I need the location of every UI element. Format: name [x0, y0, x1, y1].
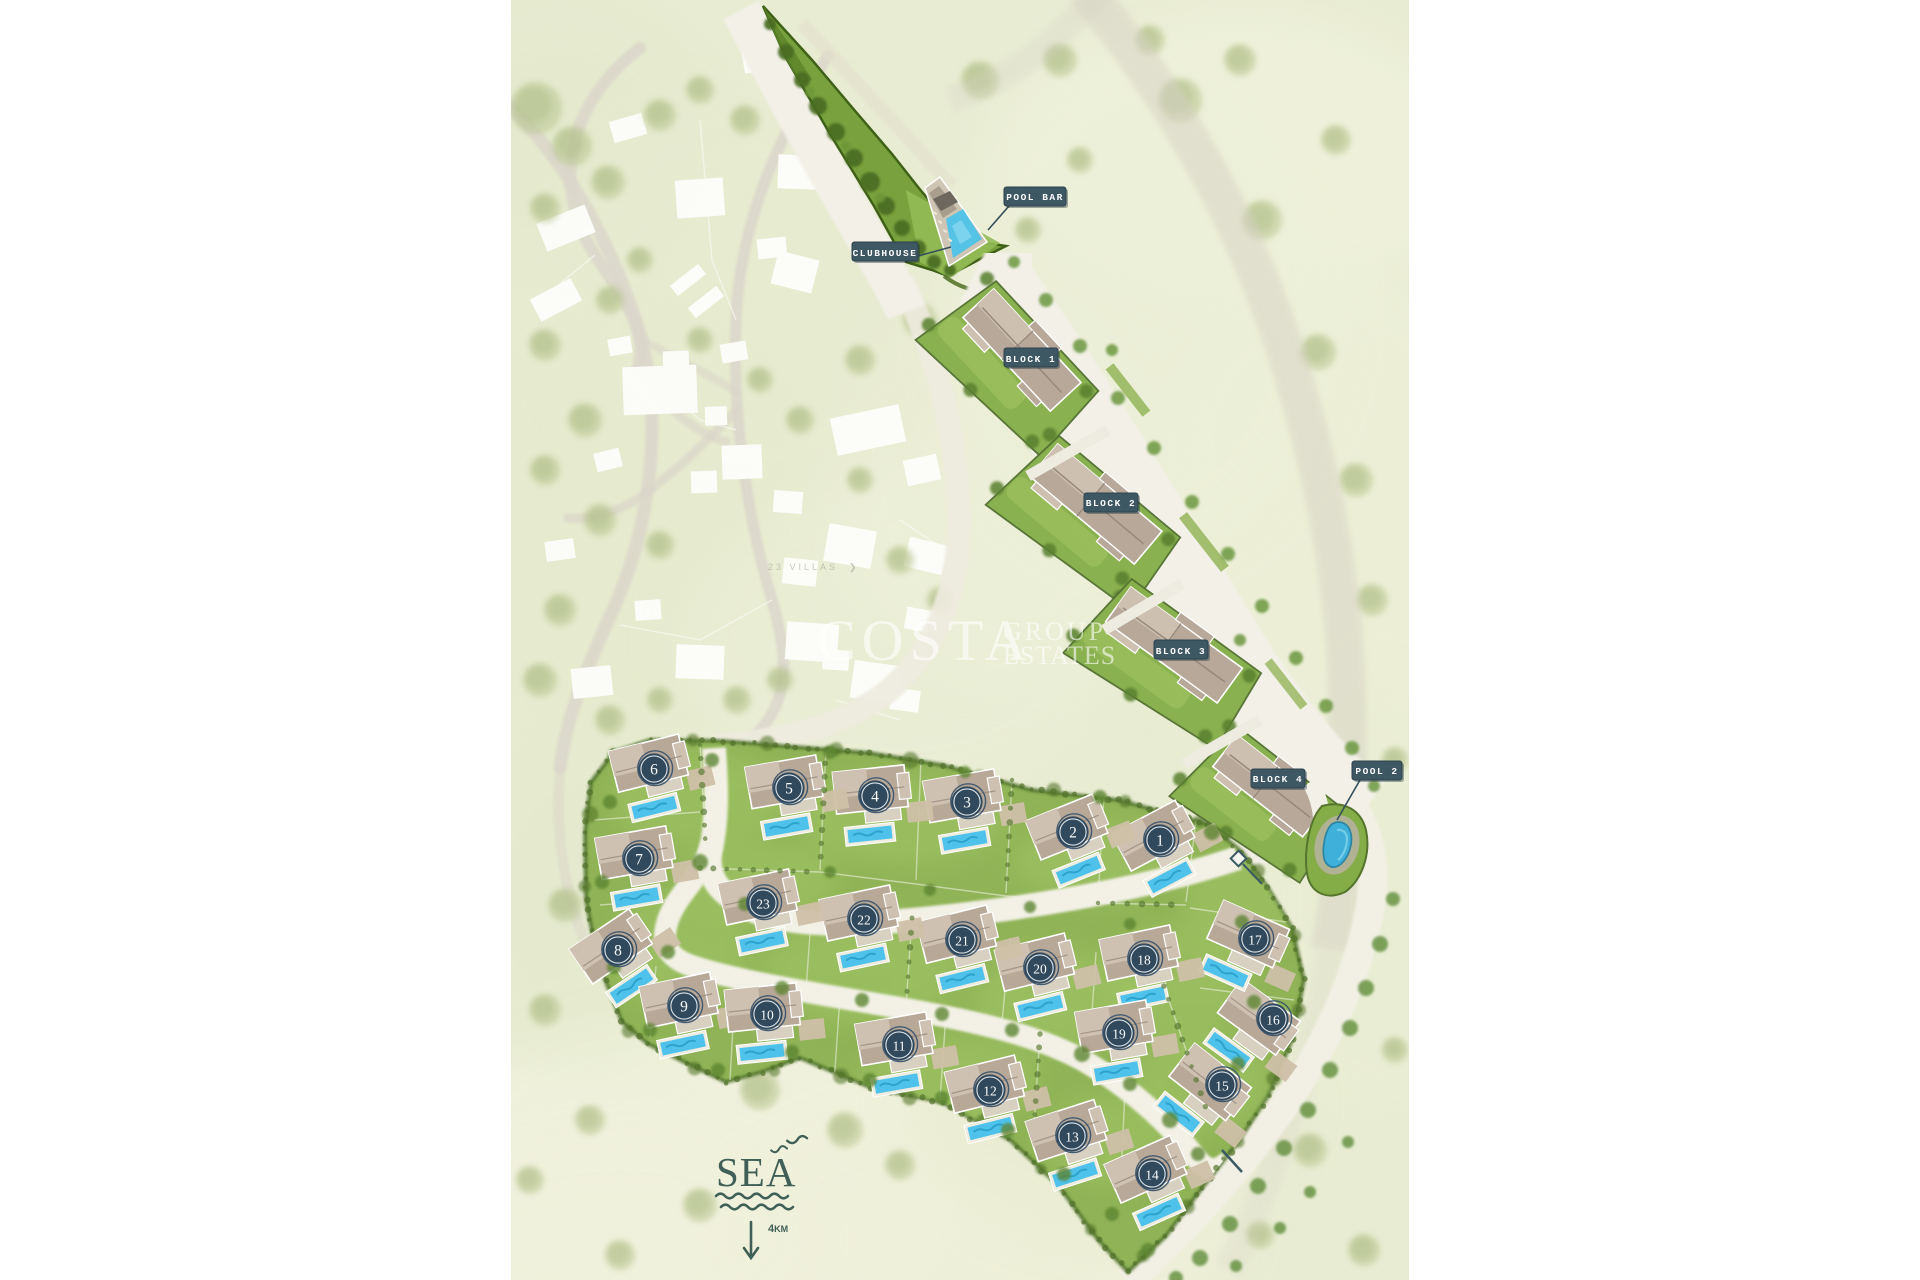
svg-text:21: 21 [955, 934, 969, 949]
svg-text:10: 10 [760, 1008, 774, 1023]
svg-text:3: 3 [963, 795, 971, 812]
svg-text:13: 13 [1065, 1130, 1079, 1145]
svg-text:16: 16 [1266, 1013, 1280, 1028]
svg-text:23: 23 [756, 897, 770, 912]
svg-text:COSTA: COSTA [817, 608, 1033, 673]
svg-text:22: 22 [857, 913, 871, 928]
svg-text:CLUBHOUSE: CLUBHOUSE [853, 248, 918, 259]
svg-text:❯: ❯ [849, 562, 857, 573]
svg-text:8: 8 [614, 943, 622, 960]
svg-text:SEA: SEA [716, 1149, 796, 1195]
svg-text:20: 20 [1033, 962, 1047, 977]
svg-text:15: 15 [1215, 1079, 1229, 1094]
svg-text:6: 6 [650, 762, 658, 779]
svg-text:12: 12 [983, 1084, 997, 1099]
svg-text:ESTATES: ESTATES [1003, 641, 1116, 670]
svg-text:9: 9 [680, 999, 688, 1016]
svg-text:POOL 2: POOL 2 [1355, 766, 1398, 777]
svg-text:BLOCK 2: BLOCK 2 [1086, 498, 1136, 509]
svg-text:5: 5 [785, 781, 793, 798]
svg-text:11: 11 [893, 1039, 906, 1054]
svg-text:POOL BAR: POOL BAR [1006, 192, 1064, 203]
svg-text:2: 2 [1069, 825, 1077, 842]
svg-text:4: 4 [871, 789, 879, 806]
svg-text:23 VILLAS: 23 VILLAS [768, 562, 838, 572]
svg-text:14: 14 [1145, 1168, 1159, 1183]
svg-text:17: 17 [1248, 933, 1262, 948]
svg-text:7: 7 [635, 852, 643, 869]
svg-text:4KM: 4KM [768, 1223, 788, 1235]
svg-text:19: 19 [1112, 1027, 1126, 1042]
svg-text:BLOCK 3: BLOCK 3 [1156, 646, 1206, 657]
svg-text:BLOCK 1: BLOCK 1 [1006, 354, 1056, 365]
svg-text:BLOCK 4: BLOCK 4 [1253, 774, 1303, 785]
svg-text:1: 1 [1156, 833, 1164, 850]
svg-text:18: 18 [1137, 953, 1151, 968]
